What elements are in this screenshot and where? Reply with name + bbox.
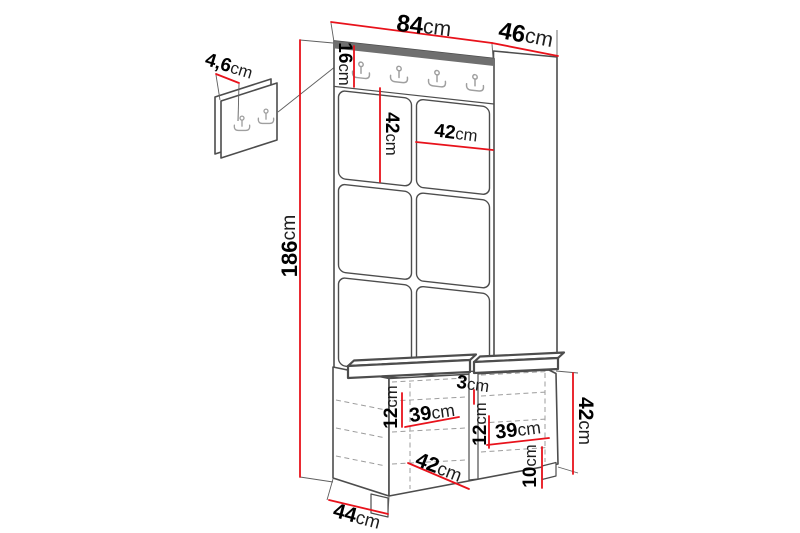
furniture-dimension-diagram: 84cm 46cm 4,6cm 186cm 16cm 42cm 42cm 3cm…	[0, 0, 800, 533]
extension-line	[327, 479, 333, 500]
leader-line	[278, 66, 336, 112]
bench-cushion-right	[474, 353, 564, 374]
extension-line	[558, 467, 578, 473]
dimension-label: 4,6cm	[203, 49, 256, 83]
dimension-label: 46cm	[497, 17, 556, 54]
dimension-label: 186cm	[277, 215, 302, 278]
dimension-label: 12cm	[381, 385, 402, 428]
panel-side-face	[494, 51, 558, 367]
dimension-label: 12cm	[470, 402, 491, 445]
dimension-label: 42cm	[575, 397, 598, 445]
extension-line	[492, 44, 493, 58]
extension-line	[556, 371, 578, 373]
extension-line	[300, 40, 333, 43]
upholstered-tile	[339, 184, 412, 280]
dimension-label: 84cm	[395, 9, 453, 42]
upholstered-tile	[417, 192, 490, 288]
panel-front-face-group	[334, 41, 494, 389]
diagram-canvas: 84cm 46cm 4,6cm 186cm 16cm 42cm 42cm 3cm…	[0, 0, 800, 533]
upholstered-tile	[417, 99, 490, 195]
extension-line	[331, 23, 334, 42]
main-unit	[334, 41, 557, 389]
bench-foot	[542, 463, 556, 480]
extension-line	[300, 477, 333, 482]
dimension-label: 16cm	[335, 42, 356, 85]
wall-hook-panel	[215, 79, 277, 158]
dimension-label: 42cm	[382, 112, 403, 155]
dimension-label: 10cm	[520, 444, 541, 487]
